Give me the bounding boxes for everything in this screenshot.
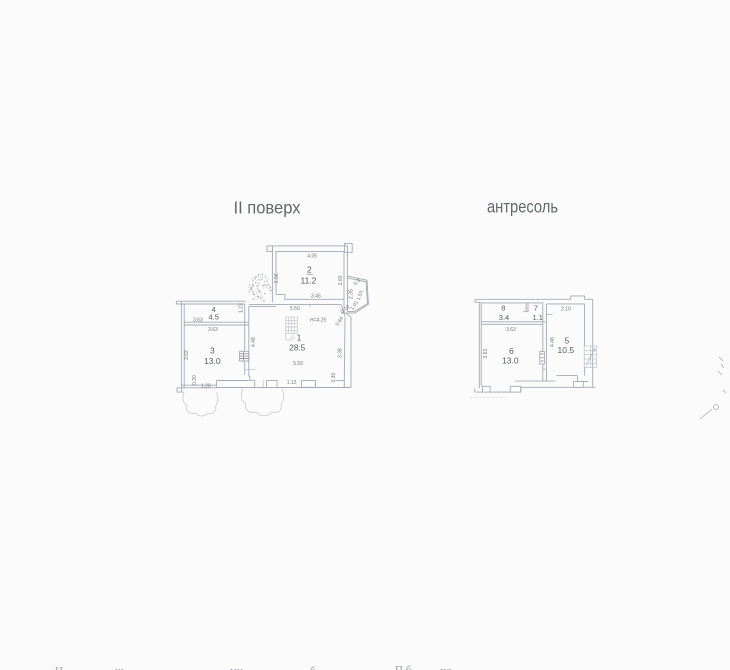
svg-text:4.5: 4.5 <box>209 313 219 322</box>
svg-text:1.01: 1.01 <box>350 300 361 312</box>
svg-text:2.60: 2.60 <box>338 275 344 285</box>
svg-text:П.б: П.б <box>395 664 412 670</box>
svg-text:б: б <box>310 665 316 670</box>
svg-text:3.63: 3.63 <box>193 318 203 324</box>
svg-text:5: 5 <box>565 336 570 346</box>
svg-text:5.59: 5.59 <box>293 361 303 367</box>
svg-text:3.38: 3.38 <box>338 348 344 358</box>
svg-text:2.56: 2.56 <box>274 273 280 283</box>
svg-text:1: 1 <box>297 334 302 343</box>
svg-text:0.64: 0.64 <box>335 316 346 328</box>
svg-text:0.30: 0.30 <box>331 373 337 383</box>
svg-text:28.5: 28.5 <box>289 344 305 353</box>
svg-text:2.10: 2.10 <box>561 307 571 313</box>
svg-text:1.53: 1.53 <box>356 290 365 301</box>
svg-text:3.63: 3.63 <box>208 327 218 333</box>
svg-text:3.63: 3.63 <box>506 327 516 333</box>
svg-text:0.30: 0.30 <box>192 375 198 385</box>
svg-text:1.12: 1.12 <box>287 380 297 386</box>
svg-text:7: 7 <box>534 303 538 312</box>
svg-text:10.5: 10.5 <box>558 345 575 355</box>
svg-text:11.2: 11.2 <box>301 276 317 286</box>
svg-text:4.48: 4.48 <box>550 337 556 347</box>
svg-text:мн: мн <box>230 665 243 670</box>
svg-text:Н: Н <box>55 665 63 670</box>
svg-text:3: 3 <box>210 346 215 356</box>
svg-text:1.26: 1.26 <box>201 384 211 390</box>
svg-text:4.05: 4.05 <box>307 253 317 259</box>
svg-text:4.48: 4.48 <box>251 337 257 347</box>
svg-text:6: 6 <box>509 346 514 356</box>
svg-text:1.1: 1.1 <box>533 313 543 322</box>
svg-text:8: 8 <box>501 303 505 312</box>
svg-text:2.35: 2.35 <box>349 289 355 299</box>
svg-text:3.4: 3.4 <box>499 313 509 322</box>
svg-text:ш: ш <box>115 665 124 670</box>
svg-text:5.50: 5.50 <box>290 306 300 312</box>
svg-text:13.0: 13.0 <box>204 356 221 366</box>
svg-text:антресоль: антресоль <box>487 197 558 217</box>
svg-text:H=4.25: H=4.25 <box>310 318 326 324</box>
svg-text:3.46: 3.46 <box>311 293 321 299</box>
svg-text:2: 2 <box>307 265 312 275</box>
svg-text:1.23: 1.23 <box>239 303 245 313</box>
svg-text:3.62: 3.62 <box>184 350 190 360</box>
svg-text:II поверх: II поверх <box>234 198 301 218</box>
svg-text:3.62: 3.62 <box>483 349 489 359</box>
svg-text:13.0: 13.0 <box>502 356 519 366</box>
svg-text:пл: пл <box>440 665 452 670</box>
